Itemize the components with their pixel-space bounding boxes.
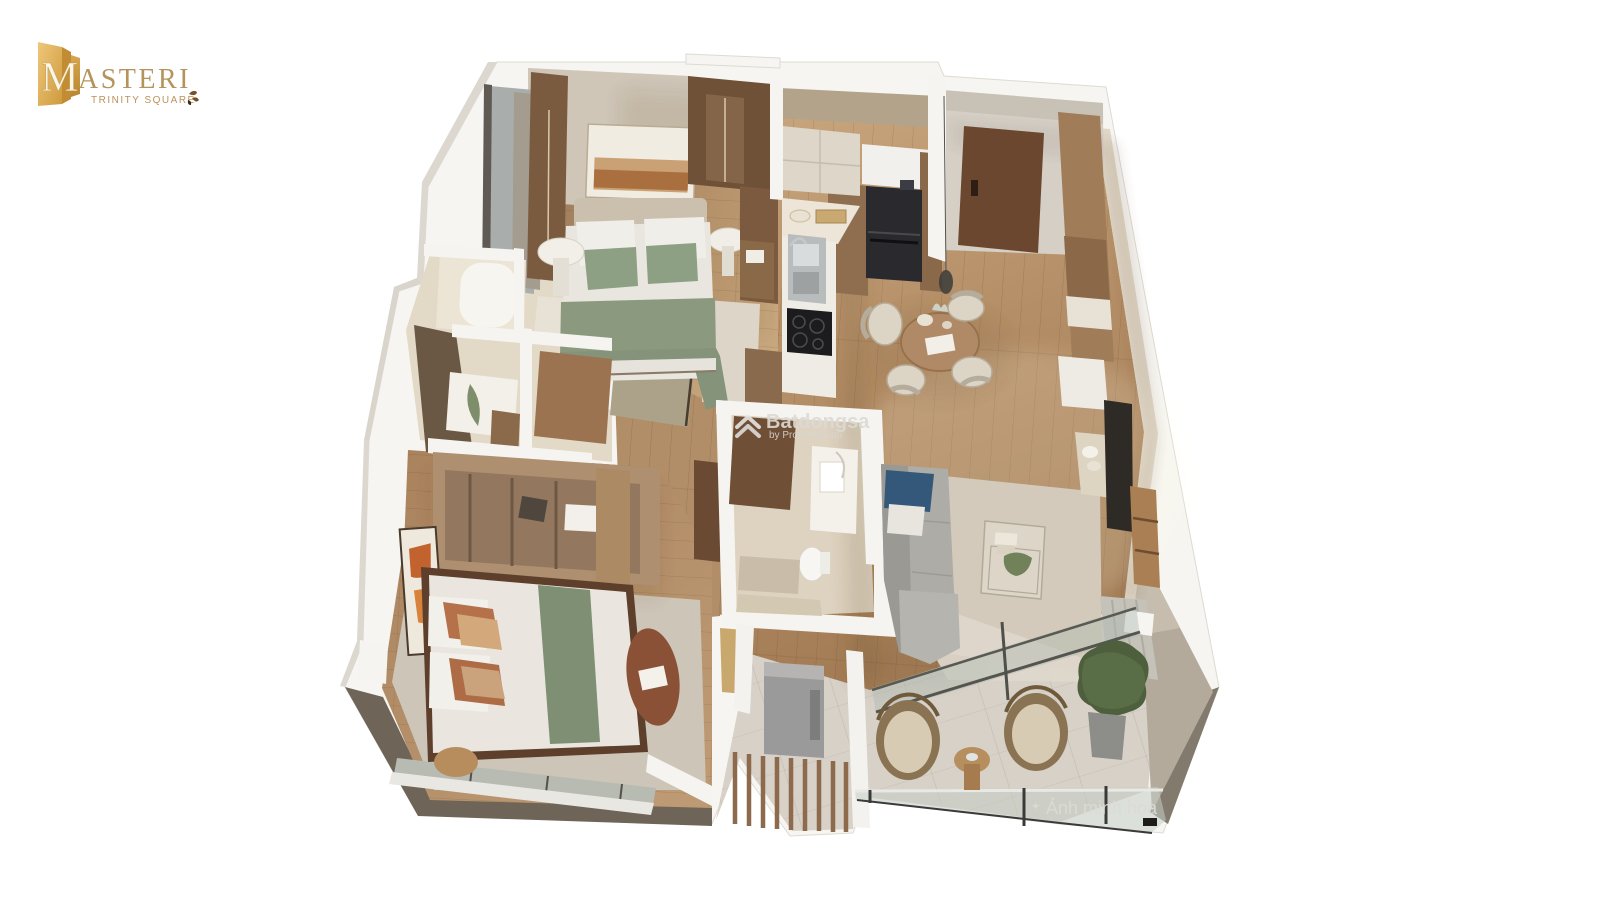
svg-text:TRINITY SQUARE: TRINITY SQUARE xyxy=(91,95,196,106)
svg-text:ASTERI: ASTERI xyxy=(78,64,191,95)
svg-text:by PropertyGuru: by PropertyGuru xyxy=(769,430,842,441)
svg-text:Ảnh minh họa: Ảnh minh họa xyxy=(1046,797,1158,818)
svg-text:✦: ✦ xyxy=(1031,801,1040,813)
svg-text:M: M xyxy=(41,55,78,101)
